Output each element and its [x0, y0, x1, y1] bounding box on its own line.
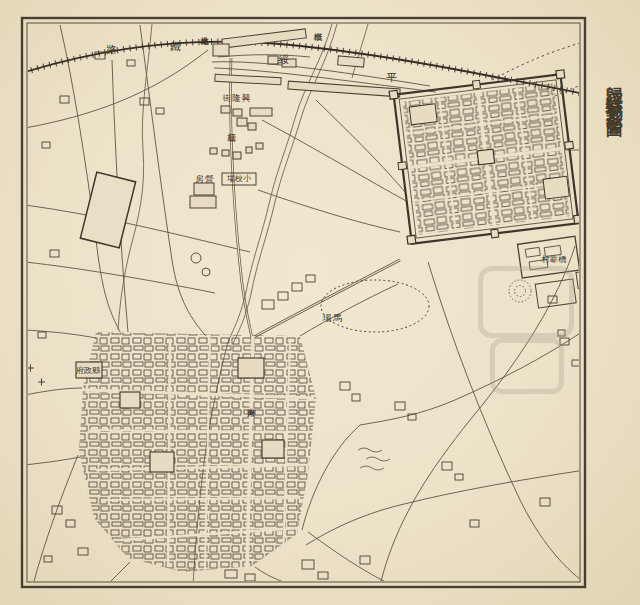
- label-county-government: 府政縣: [76, 367, 100, 375]
- label-qiaokao-village: 村靠橋: [541, 255, 567, 264]
- cross-marks: [27, 365, 45, 386]
- railway-char-tie: 鐵: [170, 42, 182, 53]
- kiln-circle: [509, 280, 531, 302]
- marsh-marks: [358, 448, 390, 470]
- label-horse-ground: 場馬: [323, 314, 344, 324]
- map-title: 歸綏城郊形勢圖: [593, 72, 623, 302]
- station-buildings: [213, 29, 400, 97]
- map-page: 路 鐵 綏 平 火車站 車棧 街隆興 紅廟 房營 場校小 場馬 村靠橋 府政縣 …: [0, 0, 640, 605]
- new-city: [389, 70, 583, 248]
- racecourse-oval: [321, 280, 429, 332]
- map-content: [25, 24, 598, 587]
- main-roads: [230, 58, 400, 338]
- label-small-drill-ground: 場校小: [227, 175, 251, 183]
- railway-char-sui: 綏: [278, 55, 290, 66]
- railway-char-ping: 平: [386, 73, 398, 84]
- old-city: [76, 275, 316, 572]
- map-canvas: [0, 0, 640, 605]
- railway-char-lu: 路: [106, 45, 118, 56]
- label-xinglong-street: 街隆興: [223, 94, 252, 103]
- label-barracks: 房營: [196, 175, 215, 184]
